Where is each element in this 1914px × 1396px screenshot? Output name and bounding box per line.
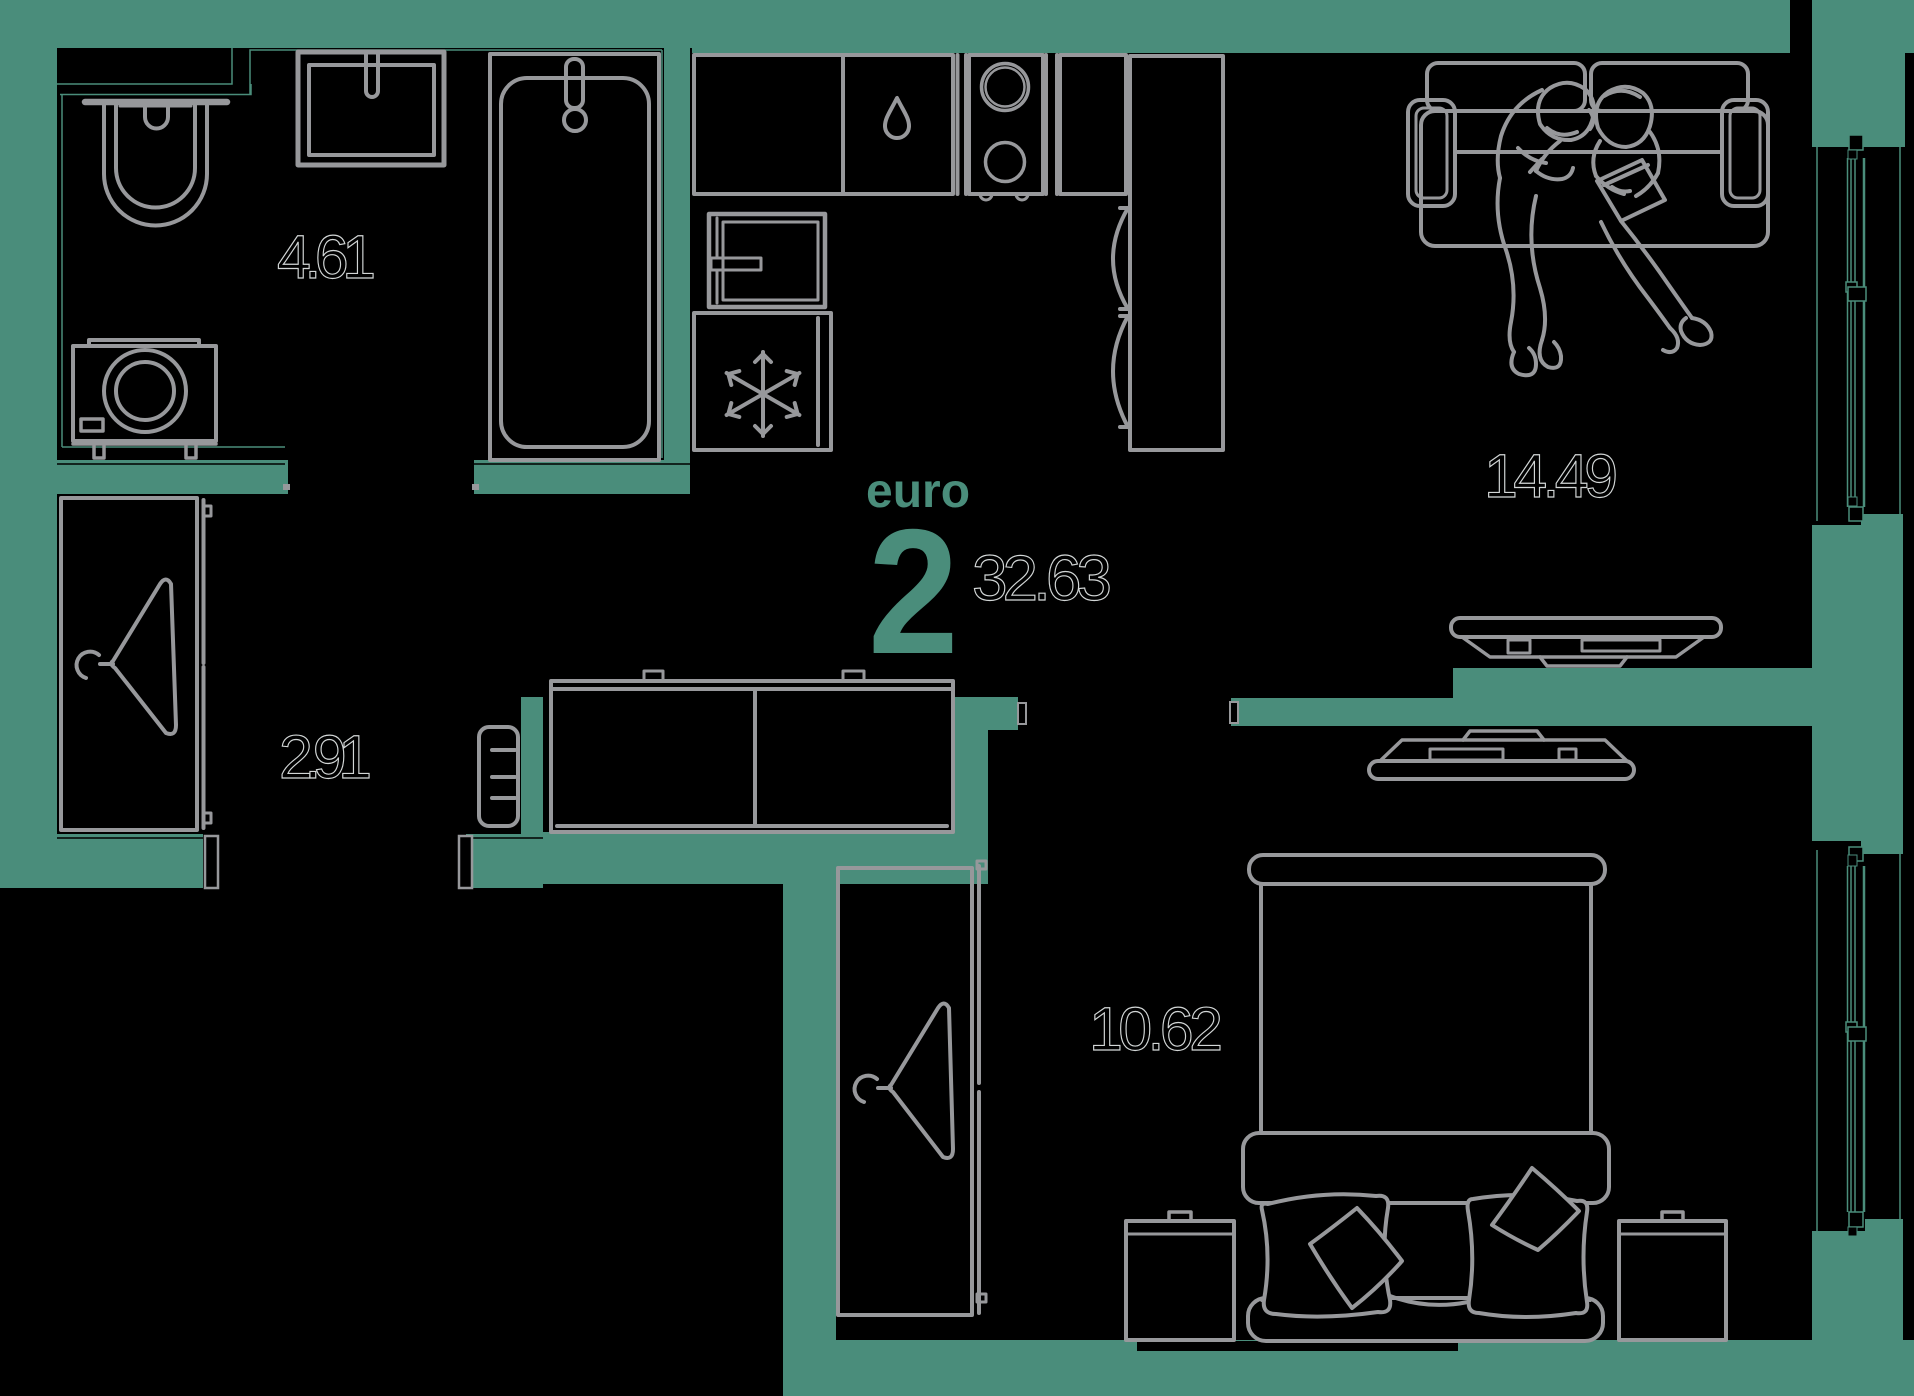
svg-text:4.61: 4.61 [277, 223, 376, 291]
svg-text:10.62: 10.62 [1089, 995, 1223, 1063]
svg-text:2: 2 [868, 492, 959, 691]
svg-text:2.91: 2.91 [279, 723, 372, 791]
svg-text:32.63: 32.63 [972, 542, 1112, 614]
svg-text:14.49: 14.49 [1484, 442, 1618, 510]
